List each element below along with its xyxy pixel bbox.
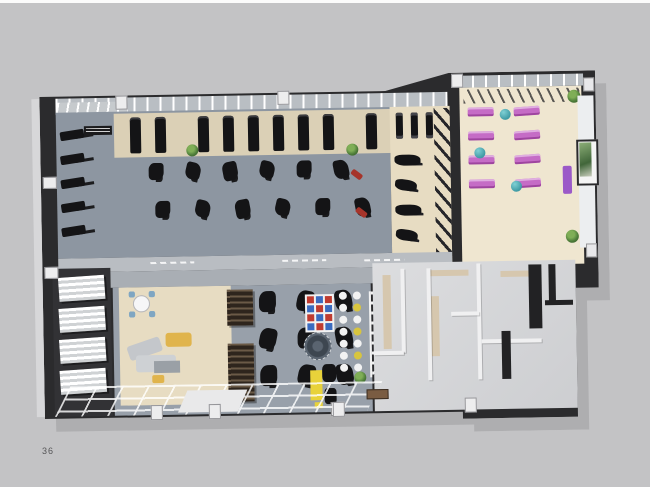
accent-wall bbox=[431, 296, 440, 356]
strength-machine bbox=[296, 160, 311, 177]
yoga-mat bbox=[513, 106, 540, 117]
grid-cell bbox=[316, 296, 323, 303]
grid-cell bbox=[325, 305, 332, 312]
treadmill bbox=[323, 114, 335, 150]
doormat bbox=[366, 389, 388, 399]
wall-rack bbox=[59, 129, 84, 142]
treadmill bbox=[223, 116, 235, 152]
strength-machine bbox=[332, 159, 350, 181]
dumbbell-rack bbox=[426, 112, 433, 138]
floor-dot bbox=[354, 351, 362, 359]
wall-graphic-text bbox=[84, 126, 112, 135]
shelf-unit bbox=[59, 337, 107, 364]
wall-pilaster bbox=[43, 177, 57, 189]
grid-cell bbox=[316, 305, 323, 312]
grid-cell bbox=[325, 296, 332, 303]
wall-pilaster bbox=[465, 397, 477, 412]
yoga-mat bbox=[468, 131, 494, 140]
yoga-mat bbox=[514, 130, 541, 141]
floor-dot bbox=[339, 316, 347, 324]
treadmill bbox=[130, 117, 142, 153]
framed-artwork bbox=[576, 139, 599, 185]
cafe-table bbox=[134, 296, 149, 311]
floor-dot bbox=[340, 364, 348, 372]
wall-pilaster bbox=[44, 267, 58, 279]
wall-mounted-rack-column bbox=[60, 130, 86, 235]
floor-dot bbox=[353, 303, 361, 311]
wall-pilaster bbox=[333, 402, 345, 417]
dumbbell-rack bbox=[396, 113, 403, 139]
grid-cell bbox=[316, 314, 323, 321]
floor-dot bbox=[353, 291, 361, 299]
slatted-partition bbox=[434, 108, 453, 268]
wall-pilaster bbox=[151, 405, 163, 420]
cardio-machine bbox=[258, 327, 279, 351]
floor-dot bbox=[340, 352, 348, 360]
strength-machine bbox=[221, 160, 239, 182]
treadmill bbox=[366, 113, 378, 149]
shelf-unit bbox=[58, 275, 106, 302]
treadmill-row bbox=[130, 112, 428, 153]
grid-cell bbox=[316, 323, 323, 330]
cafe-chair bbox=[149, 311, 155, 317]
strength-machine-row-a bbox=[149, 160, 349, 182]
strength-machine bbox=[149, 163, 164, 180]
floor-dot bbox=[339, 292, 347, 300]
grid-cell bbox=[307, 314, 314, 321]
dark-wall-segment bbox=[548, 264, 556, 302]
cafe-chair bbox=[129, 291, 135, 297]
grid-cell bbox=[307, 296, 314, 303]
wall-pilaster bbox=[451, 74, 463, 88]
floor-dot bbox=[354, 363, 362, 371]
wall-pilaster bbox=[209, 404, 221, 419]
wall-pilaster bbox=[277, 91, 289, 105]
weight-bench bbox=[394, 178, 417, 192]
strength-machine bbox=[184, 161, 202, 181]
page-top-strip bbox=[0, 0, 650, 3]
grid-cell bbox=[325, 314, 332, 321]
yellow-ottoman bbox=[152, 375, 164, 383]
treadmill bbox=[248, 115, 260, 151]
treadmill bbox=[273, 115, 285, 151]
rig-equipment bbox=[322, 364, 336, 382]
lounge-rug bbox=[154, 361, 180, 373]
floorplan-render bbox=[27, 47, 634, 447]
dumbbell-rack bbox=[411, 112, 418, 138]
dark-wall-segment bbox=[545, 300, 573, 305]
wall-rack bbox=[60, 177, 85, 190]
artwork-print bbox=[579, 142, 592, 176]
partition-wall bbox=[451, 311, 479, 315]
strength-machine bbox=[274, 197, 292, 217]
grid-cell bbox=[307, 305, 314, 312]
yoga-mat bbox=[514, 154, 541, 165]
yoga-mat bbox=[469, 179, 495, 188]
treadmill bbox=[198, 116, 210, 152]
floor-dot bbox=[339, 304, 347, 312]
yellow-sofa bbox=[165, 332, 191, 346]
wall-niche bbox=[583, 77, 594, 91]
floor-dot bbox=[354, 339, 362, 347]
floor-dot-decals bbox=[339, 291, 362, 371]
weight-bench bbox=[395, 228, 418, 242]
shelf-unit bbox=[58, 306, 106, 333]
strength-machine bbox=[315, 198, 330, 215]
strength-machine bbox=[234, 198, 252, 220]
floor-dot bbox=[353, 315, 361, 323]
dumbbell-rack-row bbox=[396, 112, 433, 139]
floor-dot bbox=[340, 340, 348, 348]
strength-machine bbox=[194, 199, 212, 219]
treadmill bbox=[155, 117, 167, 153]
accent-wall bbox=[382, 275, 391, 349]
weight-bench bbox=[394, 154, 420, 165]
grid-cell bbox=[325, 323, 332, 330]
floor-game-grid bbox=[305, 294, 335, 333]
wall-rack bbox=[61, 201, 86, 214]
dark-wall-segment bbox=[501, 331, 511, 379]
treadmill bbox=[298, 114, 310, 150]
weight-bench-column bbox=[394, 154, 421, 240]
cafe-chair bbox=[129, 311, 135, 317]
strength-machine bbox=[155, 201, 170, 218]
cafe-chair bbox=[149, 291, 155, 297]
floor-dot bbox=[339, 328, 347, 336]
ceiling-slats bbox=[463, 88, 579, 104]
grid-cell bbox=[307, 323, 314, 330]
page-number: 36 bbox=[42, 446, 54, 456]
dark-wall-segment bbox=[528, 264, 542, 328]
accent-wall bbox=[428, 270, 468, 277]
cardio-machine bbox=[259, 291, 276, 312]
yoga-mat bbox=[468, 107, 494, 116]
weight-bench bbox=[395, 204, 421, 215]
cafe-table-group bbox=[129, 291, 155, 317]
accent-wall bbox=[500, 271, 530, 278]
wall-rack bbox=[60, 153, 85, 166]
bookshelf bbox=[227, 289, 254, 325]
wall-niche bbox=[586, 243, 597, 257]
wall-pilaster bbox=[115, 96, 127, 110]
strength-machine bbox=[258, 160, 276, 180]
portfolio-page: { "page": { "number": "36" }, "palette":… bbox=[0, 0, 650, 487]
instructor-mat bbox=[563, 166, 572, 194]
partition-wall bbox=[374, 351, 404, 356]
strength-machine-row-b bbox=[155, 197, 370, 220]
floor-dot bbox=[353, 327, 361, 335]
